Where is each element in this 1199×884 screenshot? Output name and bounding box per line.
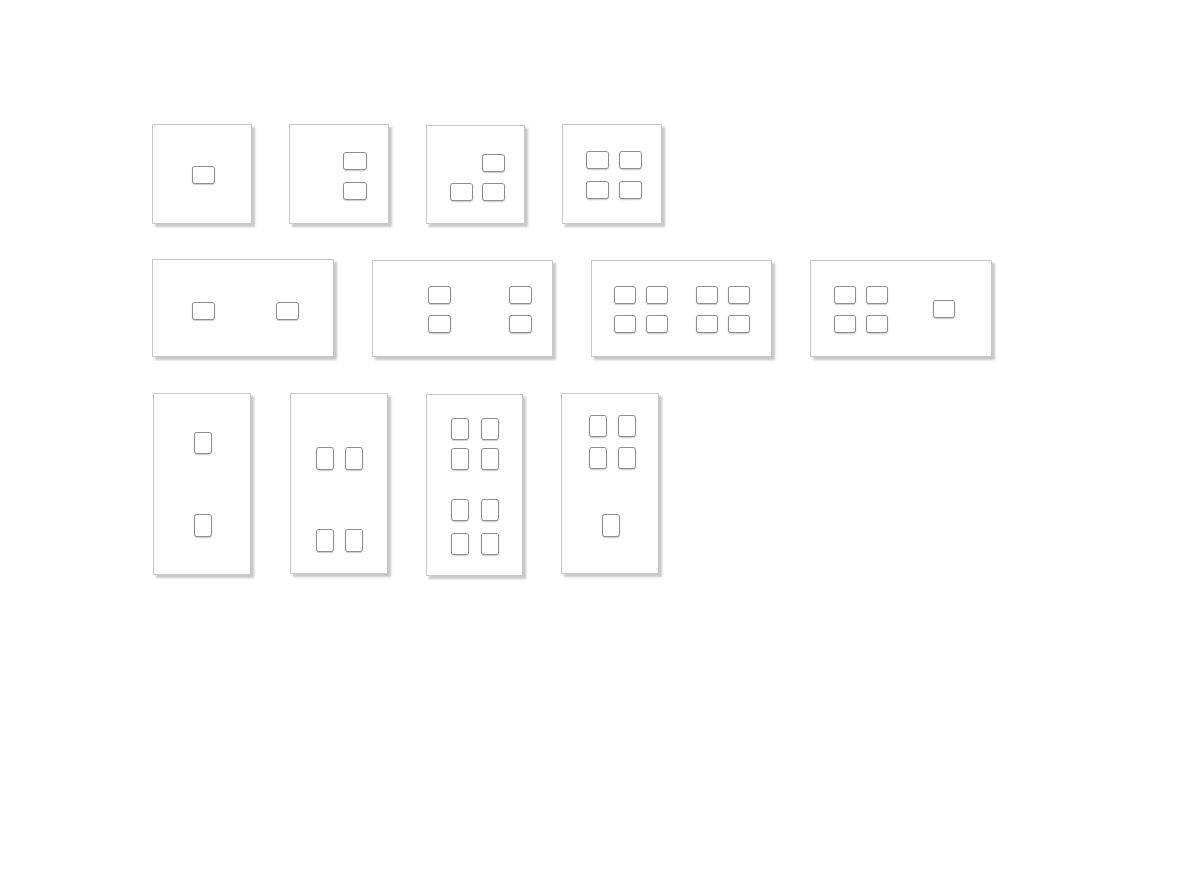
keypad-button-shape	[619, 181, 642, 199]
keypad-button-shape	[728, 286, 750, 304]
plate-gallery	[0, 0, 1199, 884]
keypad-button-shape	[586, 181, 609, 199]
keypad-button-shape	[481, 418, 499, 440]
keypad-button-shape	[451, 499, 469, 521]
keypad-button-shape	[618, 447, 636, 469]
keypad-button-shape	[481, 448, 499, 470]
keypad-button-shape	[866, 315, 888, 333]
keypad-button-shape	[728, 315, 750, 333]
keypad-button-shape	[509, 315, 532, 333]
plate-tall-4button[interactable]	[290, 393, 388, 574]
keypad-button-shape	[428, 315, 451, 333]
keypad-button-shape	[194, 514, 212, 537]
keypad-button-shape	[192, 166, 215, 184]
keypad-button-shape	[194, 432, 212, 454]
keypad-button-shape	[646, 286, 668, 304]
keypad-button-shape	[343, 182, 367, 200]
keypad-button-shape	[586, 151, 609, 169]
keypad-button-shape	[316, 529, 334, 552]
plate-wide-2button[interactable]	[152, 259, 334, 357]
keypad-button-shape	[602, 514, 620, 537]
keypad-button-shape	[618, 415, 636, 437]
keypad-button-shape	[428, 286, 451, 304]
keypad-button-shape	[345, 447, 363, 470]
keypad-button-shape	[276, 302, 299, 320]
keypad-button-shape	[834, 315, 856, 333]
keypad-button-shape	[192, 302, 215, 320]
keypad-button-shape	[614, 315, 636, 333]
keypad-button-shape	[482, 183, 505, 201]
keypad-button-shape	[451, 418, 469, 440]
keypad-button-shape	[509, 286, 532, 304]
keypad-button-shape	[451, 448, 469, 470]
plate-tall-2button[interactable]	[153, 393, 251, 575]
keypad-button-shape	[450, 183, 473, 201]
keypad-button-shape	[834, 286, 856, 304]
plate-tall-8button[interactable]	[426, 394, 523, 576]
keypad-button-shape	[589, 415, 607, 437]
keypad-button-shape	[933, 300, 955, 318]
keypad-button-shape	[696, 315, 718, 333]
keypad-button-shape	[481, 533, 499, 555]
keypad-button-shape	[345, 529, 363, 552]
keypad-button-shape	[481, 499, 499, 521]
keypad-button-shape	[482, 154, 505, 172]
plate-wide-5button[interactable]	[810, 260, 992, 357]
plate-tall-5button[interactable]	[561, 393, 659, 574]
keypad-button-shape	[646, 315, 668, 333]
keypad-button-shape	[619, 151, 642, 169]
keypad-button-shape	[614, 286, 636, 304]
plate-square-3button[interactable]	[426, 125, 525, 224]
plate-square-2button[interactable]	[289, 124, 389, 224]
plate-wide-4button[interactable]	[372, 260, 553, 357]
plate-square-4button[interactable]	[562, 124, 662, 224]
keypad-button-shape	[343, 152, 367, 170]
keypad-button-shape	[451, 533, 469, 555]
keypad-button-shape	[696, 286, 718, 304]
keypad-button-shape	[589, 447, 607, 469]
keypad-button-shape	[316, 447, 334, 470]
plate-square-1button[interactable]	[152, 124, 252, 224]
keypad-button-shape	[866, 286, 888, 304]
plate-wide-8button[interactable]	[591, 260, 772, 357]
